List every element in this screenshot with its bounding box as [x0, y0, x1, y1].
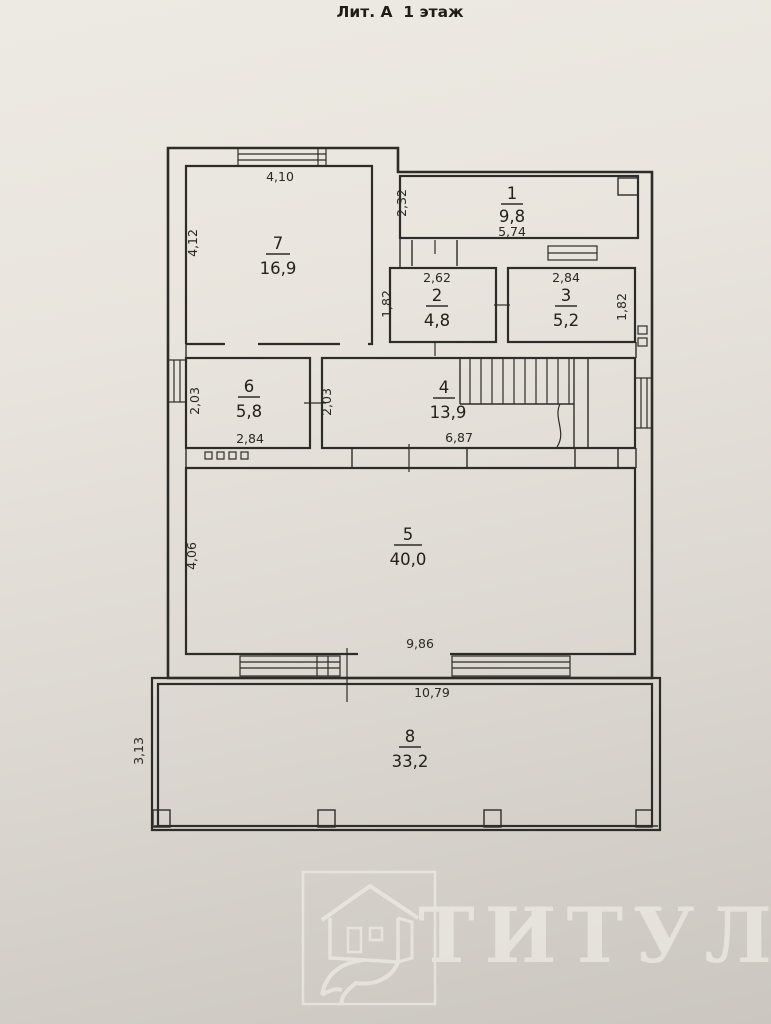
room-2: 2,62 1,82 2 4,8	[379, 268, 496, 342]
watermark: ТИТУЛ	[303, 872, 771, 1004]
window	[238, 148, 326, 166]
heating-pillar	[229, 452, 236, 459]
windows	[168, 148, 652, 702]
dim-room1-left: 2,32	[394, 189, 409, 217]
room-4-number: 4	[439, 378, 450, 397]
room-8: 10,79 3,13 8 33,2	[131, 684, 652, 827]
heating-pillar	[241, 452, 248, 459]
heating-pillar	[217, 452, 224, 459]
room-3-area: 5,2	[553, 311, 579, 330]
chimney-block	[618, 178, 638, 195]
dim-room8-left: 3,13	[131, 737, 146, 765]
dim-room6-left: 2,03	[187, 387, 202, 415]
window	[635, 378, 652, 428]
room-7-walls	[186, 166, 372, 344]
room-5-number: 5	[403, 525, 414, 544]
veranda-column	[153, 810, 170, 827]
window	[452, 656, 570, 676]
dim-room8-top: 10,79	[414, 685, 450, 700]
room-6-number: 6	[244, 377, 255, 396]
heating-pillar	[205, 452, 212, 459]
dim-room1-bottom: 5,74	[498, 224, 526, 239]
wall-band-below-room1	[400, 238, 597, 268]
room-5: 4,06 5 40,0 9,86	[184, 468, 635, 654]
dim-room7-top: 4,10	[266, 169, 294, 184]
dim-room5-left: 4,06	[184, 542, 199, 570]
veranda-column	[636, 810, 652, 827]
stair-break-line	[557, 404, 561, 447]
floor-plan-svg: Лит. А 1 этаж 4,10 4,12 7 16,9 2,32 1 9,…	[0, 0, 771, 1024]
room-6: 2,03 6 5,8 2,84	[186, 358, 310, 448]
room-1: 2,32 1 9,8 5,74	[394, 176, 638, 239]
watermark-house-icon	[303, 872, 435, 1004]
room-4-area: 13,9	[430, 403, 467, 422]
window	[240, 656, 340, 676]
dim-room6-bottom: 2,84	[236, 431, 264, 446]
dim-room5-bottom: 9,86	[406, 636, 434, 651]
dim-room3-top: 2,84	[552, 270, 580, 285]
veranda-column	[318, 810, 335, 827]
room-5-area: 40,0	[390, 550, 427, 569]
page-title: Лит. А 1 этаж	[336, 3, 464, 21]
veranda-column	[484, 810, 501, 827]
watermark-text: ТИТУЛ	[418, 891, 771, 980]
dim-room2-left: 1,82	[379, 290, 394, 318]
room-8-area: 33,2	[392, 752, 429, 771]
room-8-number: 8	[405, 727, 416, 746]
dim-room4-bottom: 6,87	[445, 430, 473, 445]
window	[548, 246, 597, 260]
room-7: 4,10 4,12 7 16,9	[185, 166, 372, 344]
window	[168, 360, 186, 402]
room-7-area: 16,9	[260, 259, 297, 278]
scanned-floor-plan-page: Лит. А 1 этаж 4,10 4,12 7 16,9 2,32 1 9,…	[0, 0, 771, 1024]
dim-room4-left: 2,03	[319, 388, 334, 416]
room-1-number: 1	[507, 184, 518, 203]
room-7-number: 7	[273, 234, 284, 253]
room-2-number: 2	[432, 286, 443, 305]
room-2-area: 4,8	[424, 311, 450, 330]
staircase	[460, 358, 588, 448]
flue-duct	[638, 338, 647, 346]
flue-duct	[638, 326, 647, 334]
room-3-number: 3	[561, 286, 572, 305]
room-6-area: 5,8	[236, 402, 262, 421]
dim-room7-left: 4,12	[185, 229, 200, 257]
dim-room2-top: 2,62	[423, 270, 451, 285]
dim-room3-right: 1,82	[614, 293, 629, 321]
